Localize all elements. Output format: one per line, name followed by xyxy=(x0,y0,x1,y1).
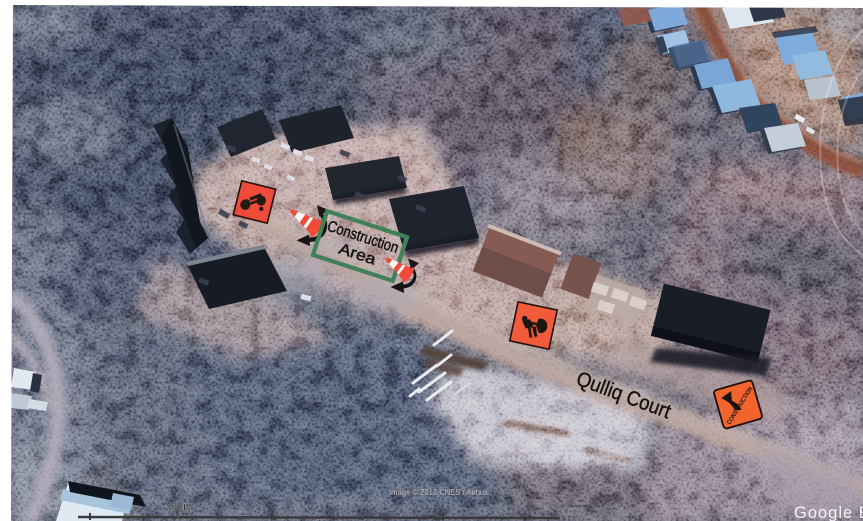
svg-text:Google Ea: Google Ea xyxy=(794,504,863,521)
svg-text:Image © 2012 CNES / Airbus: Image © 2012 CNES / Airbus xyxy=(389,487,488,497)
svg-text:60 m: 60 m xyxy=(168,501,192,513)
